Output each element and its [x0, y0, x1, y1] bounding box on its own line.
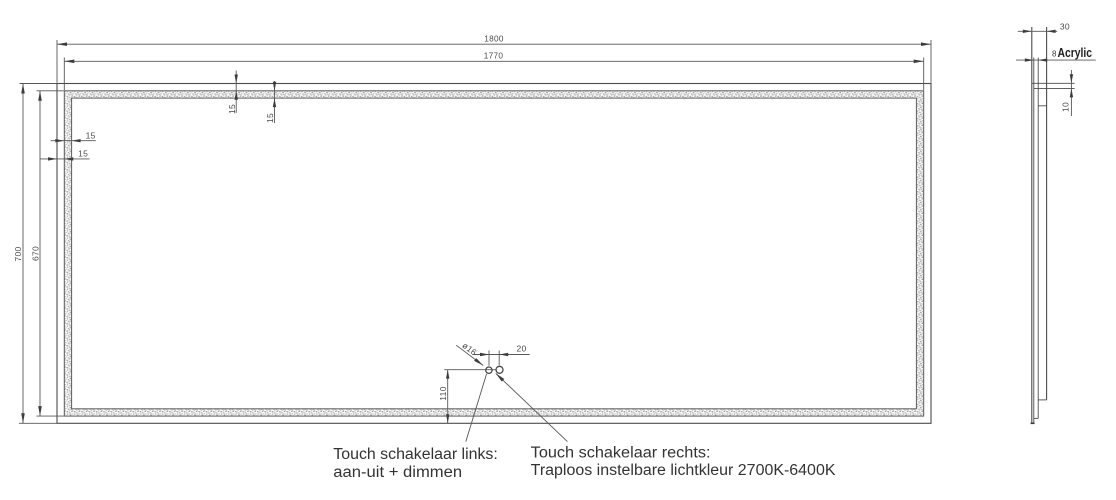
- svg-text:Acrylic: Acrylic: [1058, 45, 1093, 60]
- svg-text:10: 10: [1060, 102, 1070, 112]
- svg-text:20: 20: [516, 344, 526, 354]
- svg-text:1800: 1800: [484, 33, 504, 43]
- svg-text:110: 110: [438, 386, 448, 400]
- svg-text:Traploos instelbare lichtkleur: Traploos instelbare lichtkleur 2700K-640…: [531, 462, 836, 479]
- svg-text:1770: 1770: [484, 50, 504, 60]
- svg-text:15: 15: [227, 104, 237, 114]
- svg-text:Touch schakelaar links:: Touch schakelaar links:: [333, 446, 498, 463]
- svg-text:30: 30: [1060, 21, 1070, 31]
- svg-text:670: 670: [31, 246, 41, 261]
- svg-text:15: 15: [265, 113, 275, 123]
- svg-text:Touch schakelaar rechts:: Touch schakelaar rechts:: [531, 444, 711, 461]
- svg-text:ø16: ø16: [460, 340, 478, 357]
- svg-text:aan-uit + dimmen: aan-uit + dimmen: [333, 464, 462, 481]
- svg-text:15: 15: [78, 148, 88, 158]
- svg-text:15: 15: [86, 130, 96, 140]
- svg-text:8: 8: [1052, 50, 1057, 59]
- svg-text:700: 700: [13, 246, 23, 261]
